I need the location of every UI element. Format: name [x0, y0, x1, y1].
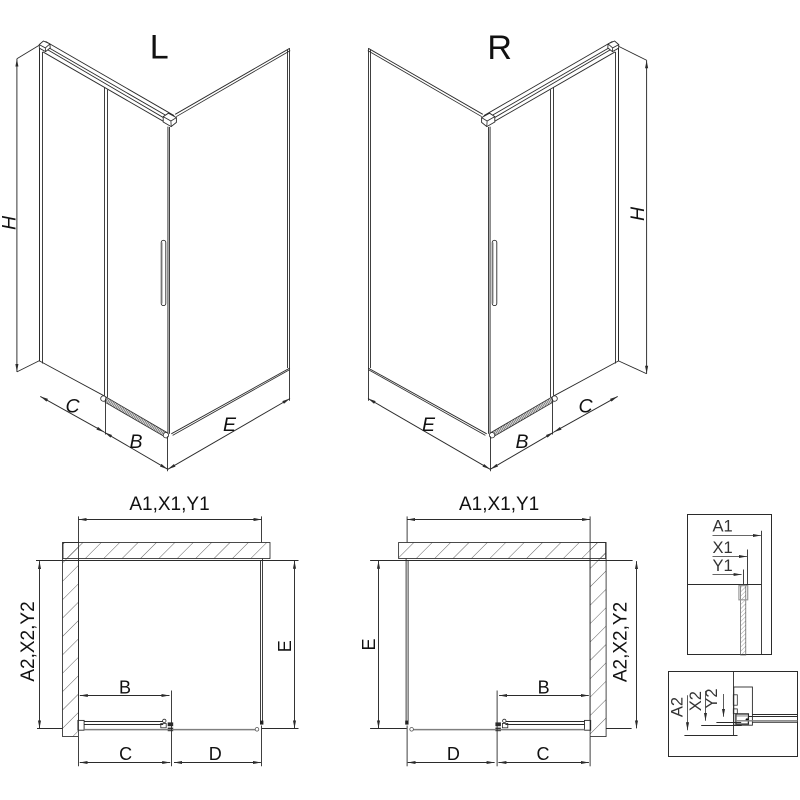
svg-text:C: C [537, 744, 550, 764]
svg-text:A2,X2,Y2: A2,X2,Y2 [611, 602, 632, 682]
svg-text:A1,X1,Y1: A1,X1,Y1 [129, 494, 209, 515]
svg-text:D: D [447, 744, 460, 764]
svg-text:H: H [627, 206, 649, 221]
svg-text:E: E [223, 414, 237, 436]
svg-text:Y1: Y1 [713, 557, 733, 575]
svg-text:R: R [487, 29, 512, 67]
svg-text:A1: A1 [713, 518, 733, 536]
svg-text:L: L [150, 29, 169, 67]
svg-text:Y2: Y2 [703, 688, 721, 708]
svg-text:A2,X2,Y2: A2,X2,Y2 [18, 601, 39, 681]
svg-text:X1: X1 [713, 539, 733, 557]
svg-text:A1,X1,Y1: A1,X1,Y1 [459, 494, 539, 515]
svg-text:E: E [359, 638, 379, 650]
svg-text:A2: A2 [668, 697, 686, 717]
svg-text:C: C [119, 744, 132, 764]
svg-text:B: B [515, 431, 528, 453]
svg-text:B: B [538, 677, 550, 697]
svg-text:B: B [119, 677, 131, 697]
svg-text:D: D [209, 744, 222, 764]
svg-text:C: C [578, 395, 593, 417]
svg-text:H: H [0, 215, 20, 230]
svg-text:E: E [422, 414, 436, 436]
svg-text:B: B [129, 431, 142, 453]
svg-text:E: E [275, 640, 295, 652]
svg-text:C: C [65, 395, 80, 417]
